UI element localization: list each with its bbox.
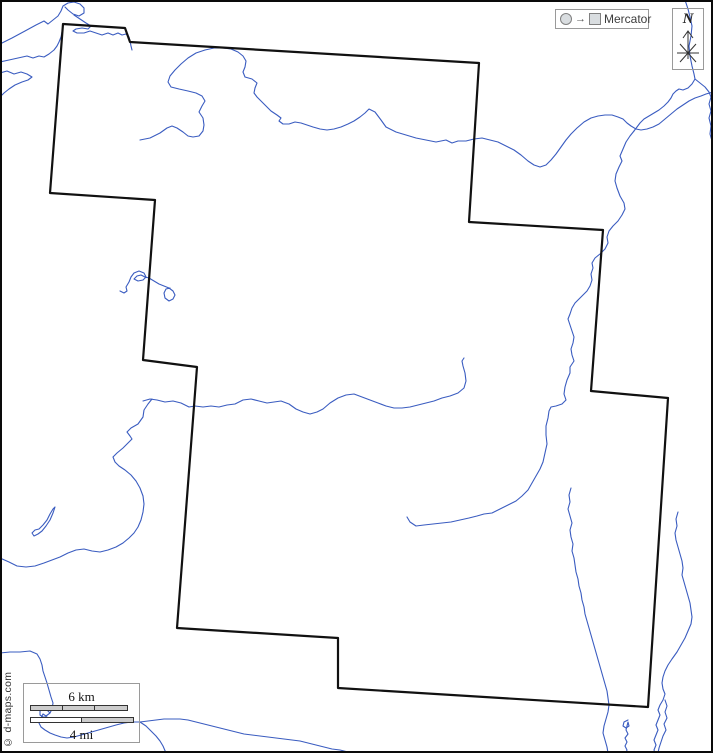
river-southeast-river bbox=[654, 512, 692, 753]
compass-rose: N bbox=[672, 8, 704, 70]
river-northwest-river-main bbox=[73, 15, 132, 50]
scale-km-label: 6 km bbox=[24, 690, 139, 703]
river-northeast-river-fork bbox=[695, 79, 713, 145]
mi-bar bbox=[30, 717, 134, 723]
projection-name: Mercator bbox=[604, 13, 651, 25]
scale-bar: 6 km 4 mi bbox=[23, 683, 140, 743]
river-east-river bbox=[407, 131, 634, 526]
globe-circle-icon bbox=[560, 13, 572, 25]
river-northwest-river-lower bbox=[0, 71, 32, 97]
map-page: → Mercator N 6 km 4 mi © d-maps.com bbox=[0, 0, 713, 753]
map-canvas bbox=[0, 0, 713, 753]
north-label: N bbox=[673, 12, 703, 27]
river-northwest-river-upper bbox=[0, 2, 84, 44]
river-northwest-river-mid bbox=[0, 28, 63, 62]
river-south-river bbox=[568, 488, 609, 753]
mi-bar-segment bbox=[82, 717, 134, 723]
lake-outline bbox=[32, 507, 55, 536]
km-bar bbox=[30, 705, 128, 711]
river-north-river bbox=[140, 48, 713, 167]
map-frame bbox=[1, 1, 712, 752]
north-arrow-icon bbox=[673, 27, 703, 67]
km-bar-segment bbox=[63, 705, 95, 711]
flat-map-square-icon bbox=[589, 13, 601, 25]
km-bar-segment bbox=[95, 705, 128, 711]
territory-boundary bbox=[50, 24, 668, 707]
river-west-river bbox=[0, 399, 152, 567]
arrow-right-icon: → bbox=[575, 14, 586, 25]
scale-mi-label: 4 mi bbox=[24, 728, 139, 741]
copyright-text: © d-maps.com bbox=[2, 668, 14, 748]
km-bar-segment bbox=[30, 705, 63, 711]
river-southwest-river-branch bbox=[140, 722, 166, 753]
mi-bar-segment bbox=[30, 717, 82, 723]
river-south-stream bbox=[623, 720, 629, 753]
projection-legend: → Mercator bbox=[555, 9, 649, 29]
